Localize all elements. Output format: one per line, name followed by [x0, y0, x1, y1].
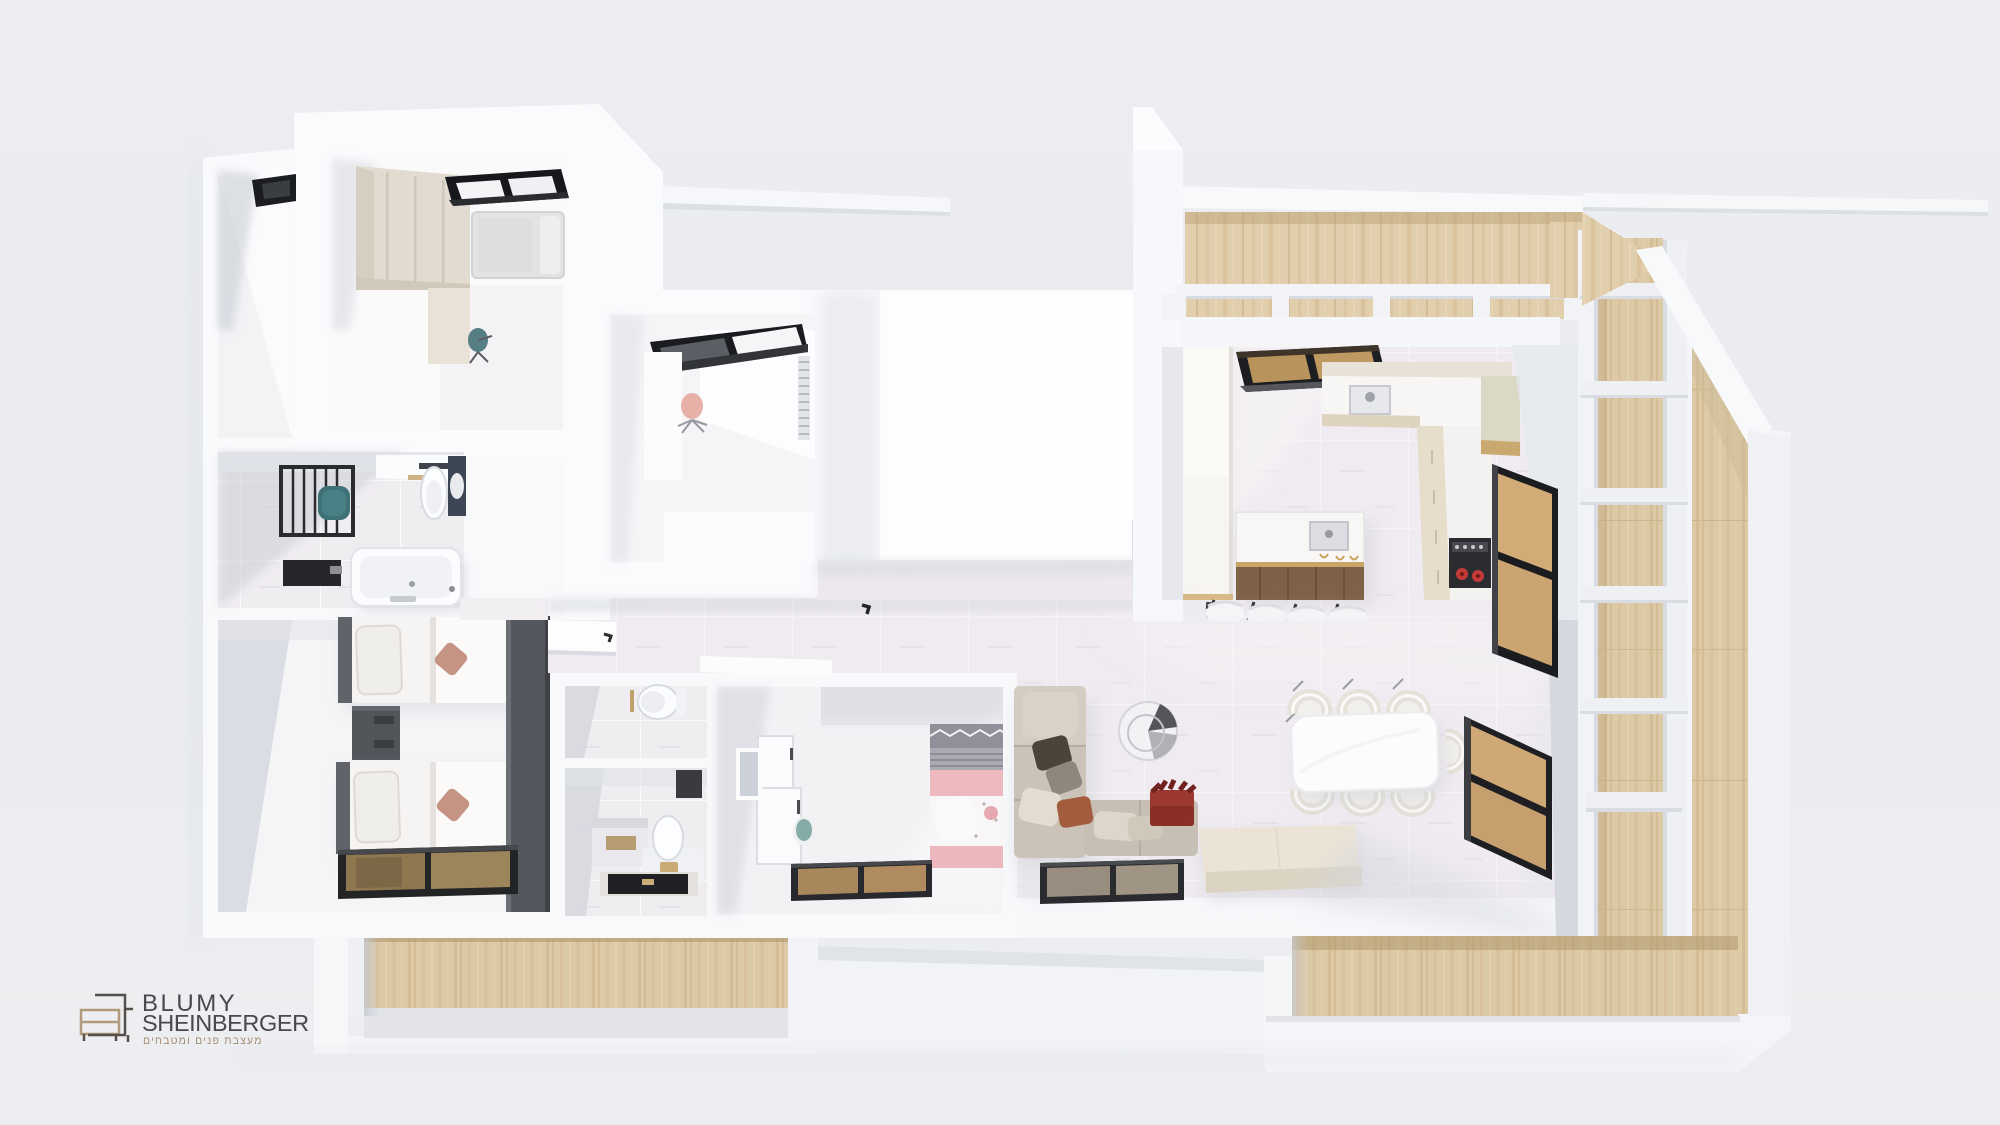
svg-text:SHEINBERGER: SHEINBERGER [142, 1010, 309, 1036]
svg-text:מעצבת פנים ומטבחים: מעצבת פנים ומטבחים [143, 1035, 263, 1047]
